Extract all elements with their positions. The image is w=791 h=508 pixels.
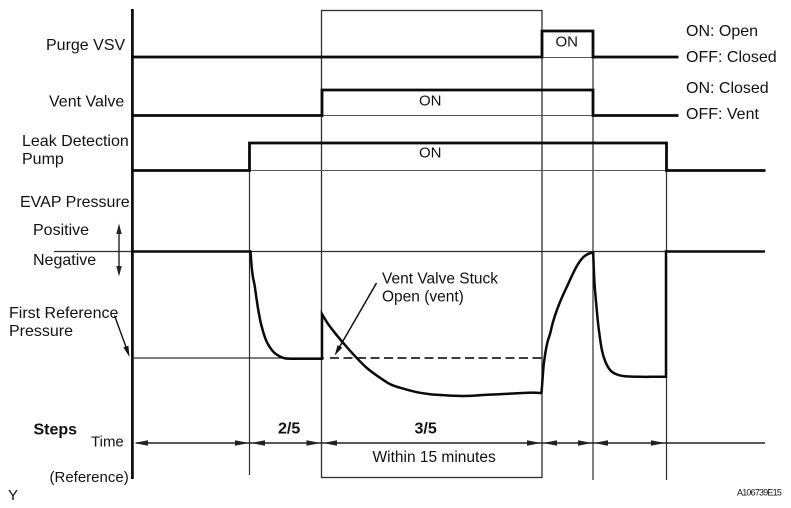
svg-text:(Reference): (Reference) — [50, 469, 129, 486]
svg-text:ON: ON — [419, 145, 442, 162]
svg-text:Vent Valve Stuck: Vent Valve Stuck — [382, 271, 498, 288]
svg-text:OFF: Closed: OFF: Closed — [686, 49, 777, 66]
svg-text:Open (vent): Open (vent) — [382, 289, 464, 306]
svg-text:ON: Open: ON: Open — [686, 23, 758, 40]
svg-text:Purge VSV: Purge VSV — [46, 37, 125, 54]
svg-text:3/5: 3/5 — [415, 421, 437, 438]
svg-text:Y: Y — [8, 487, 18, 504]
svg-text:ON: ON — [556, 34, 579, 51]
svg-text:2/5: 2/5 — [278, 421, 300, 438]
svg-text:Within 15 minutes: Within 15 minutes — [373, 449, 496, 466]
svg-text:Negative: Negative — [33, 252, 96, 269]
svg-text:Pressure: Pressure — [9, 323, 73, 340]
svg-text:ON: Closed: ON: Closed — [686, 80, 769, 97]
svg-text:Leak Detection: Leak Detection — [22, 133, 129, 150]
svg-text:Vent Valve: Vent Valve — [49, 94, 124, 111]
svg-text:Steps: Steps — [34, 422, 78, 439]
svg-text:Positive: Positive — [33, 222, 89, 239]
svg-text:A106739E15: A106739E15 — [737, 488, 782, 498]
svg-text:First Reference: First Reference — [9, 305, 118, 322]
svg-text:OFF: Vent: OFF: Vent — [686, 106, 759, 123]
svg-text:Time: Time — [91, 434, 124, 451]
svg-text:Pump: Pump — [22, 151, 64, 168]
svg-text:ON: ON — [419, 93, 442, 110]
svg-text:EVAP Pressure: EVAP Pressure — [20, 194, 130, 211]
